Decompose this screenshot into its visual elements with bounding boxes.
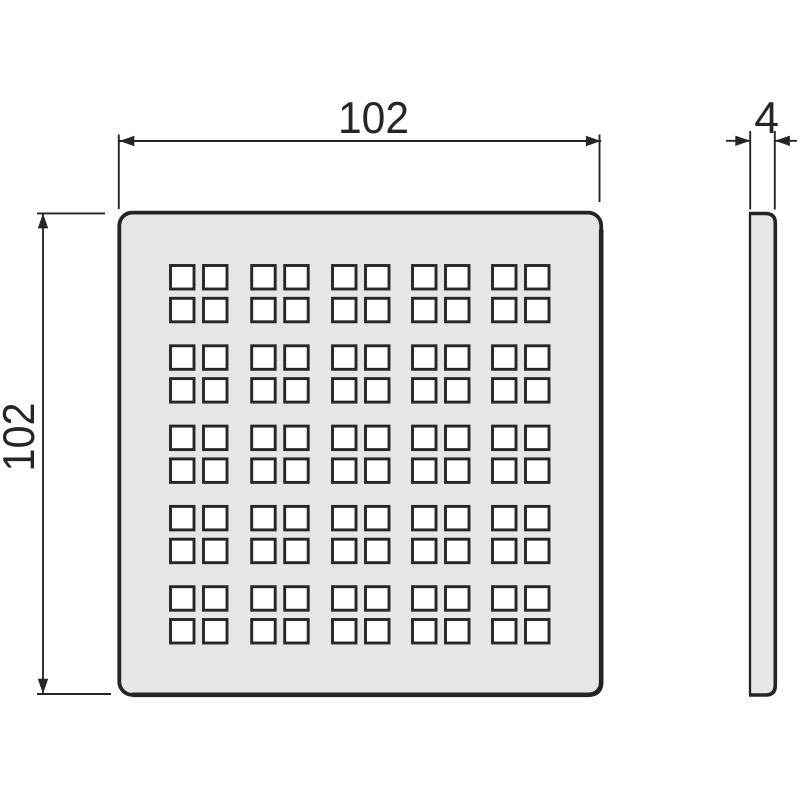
svg-text:4: 4 — [754, 94, 779, 143]
svg-text:102: 102 — [338, 94, 409, 143]
svg-text:102: 102 — [0, 403, 44, 472]
